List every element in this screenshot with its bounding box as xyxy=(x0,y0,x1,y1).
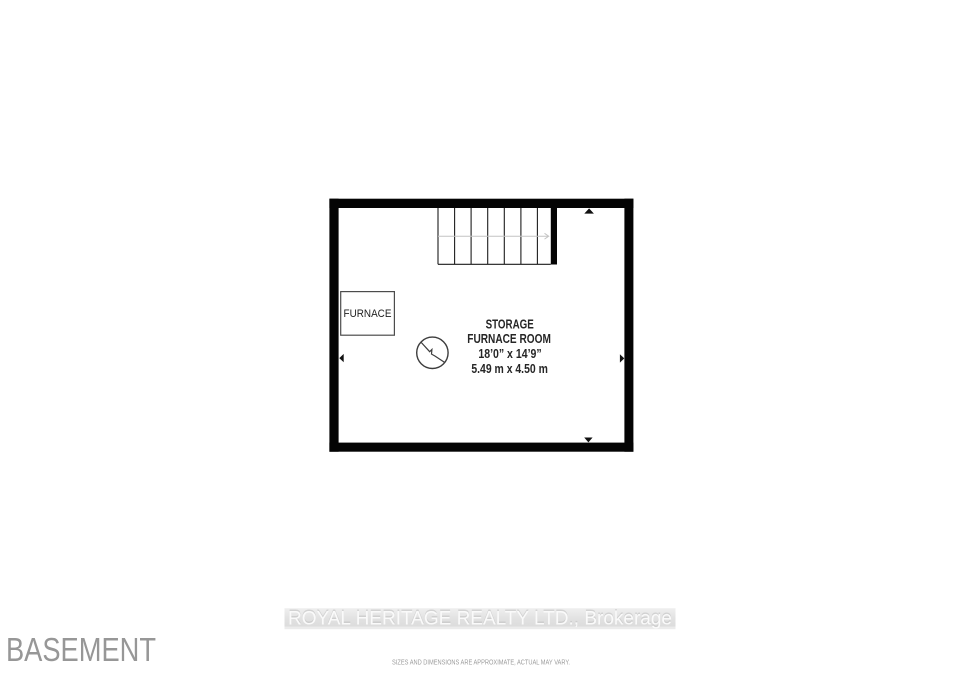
svg-text:18’0” x 14’9”: 18’0” x 14’9” xyxy=(478,346,541,361)
svg-text:BASEMENT: BASEMENT xyxy=(6,631,156,668)
svg-text:ROYAL HERITAGE REALTY LTD., Br: ROYAL HERITAGE REALTY LTD., Brokerage xyxy=(288,608,672,629)
svg-text:FURNACE: FURNACE xyxy=(344,308,392,320)
svg-text:SIZES AND DIMENSIONS ARE APPRO: SIZES AND DIMENSIONS ARE APPROXIMATE, AC… xyxy=(392,657,570,666)
svg-text:STORAGE: STORAGE xyxy=(486,316,535,331)
svg-text:FURNACE ROOM: FURNACE ROOM xyxy=(467,331,551,346)
svg-text:5.49 m x 4.50 m: 5.49 m x 4.50 m xyxy=(471,361,548,376)
